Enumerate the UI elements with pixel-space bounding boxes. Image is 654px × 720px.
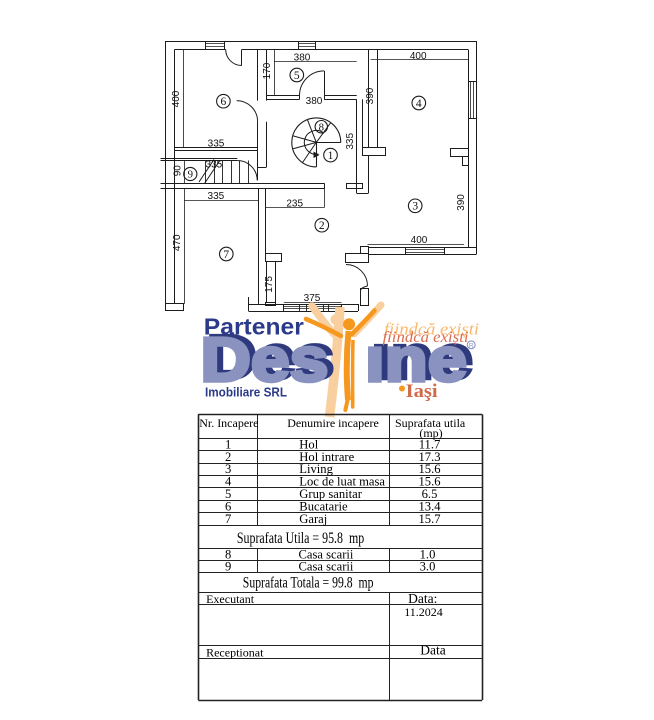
svg-text:Receptionat: Receptionat	[206, 645, 264, 659]
svg-text:400: 400	[411, 235, 428, 246]
svg-text:3.0: 3.0	[420, 560, 436, 574]
svg-text:400: 400	[410, 51, 427, 62]
svg-text:R: R	[469, 342, 474, 349]
svg-text:470: 470	[172, 234, 183, 251]
svg-text:1: 1	[328, 150, 334, 162]
svg-text:fiindcă exiști: fiindcă exiști	[383, 329, 469, 346]
svg-text:7: 7	[223, 249, 229, 261]
svg-text:335: 335	[208, 139, 225, 150]
svg-text:390: 390	[456, 194, 467, 211]
svg-text:2: 2	[319, 220, 325, 232]
svg-text:7: 7	[225, 512, 231, 526]
svg-text:Imobiliare SRL: Imobiliare SRL	[205, 384, 287, 399]
svg-text:15.7: 15.7	[418, 512, 440, 526]
svg-text:5: 5	[294, 70, 300, 82]
svg-text:335: 335	[345, 133, 356, 150]
svg-text:170: 170	[262, 62, 273, 79]
svg-text:3: 3	[412, 201, 418, 213]
svg-text:175: 175	[264, 276, 275, 293]
svg-text:9: 9	[188, 169, 193, 181]
svg-text:9: 9	[225, 560, 231, 574]
svg-text:6: 6	[221, 96, 227, 108]
svg-text:335: 335	[208, 191, 225, 202]
svg-text:Data:: Data:	[408, 591, 437, 606]
svg-text:Iaşi: Iaşi	[406, 381, 438, 402]
svg-text:380: 380	[306, 96, 323, 107]
svg-text:90: 90	[173, 165, 184, 177]
svg-text:400: 400	[171, 90, 182, 107]
svg-text:Casa scarii: Casa scarii	[299, 560, 354, 574]
svg-text:Garaj: Garaj	[299, 512, 327, 526]
svg-text:390: 390	[365, 87, 376, 104]
svg-text:11.2024: 11.2024	[404, 605, 443, 619]
svg-text:Executant: Executant	[206, 592, 255, 606]
svg-text:4: 4	[416, 98, 422, 110]
svg-text:235: 235	[286, 198, 303, 209]
svg-text:8: 8	[319, 121, 324, 133]
svg-text:335: 335	[206, 160, 223, 171]
svg-text:Data: Data	[420, 643, 445, 658]
svg-text:Suprafata Totala = 99.8 mp: Suprafata Totala = 99.8 mp	[243, 575, 374, 592]
svg-text:380: 380	[294, 53, 311, 64]
svg-text:Denumire incapere: Denumire incapere	[287, 416, 379, 430]
svg-text:Suprafata Utila = 95.8 mp: Suprafata Utila = 95.8 mp	[237, 530, 364, 547]
svg-text:Nr. Incapere: Nr. Incapere	[199, 416, 258, 430]
